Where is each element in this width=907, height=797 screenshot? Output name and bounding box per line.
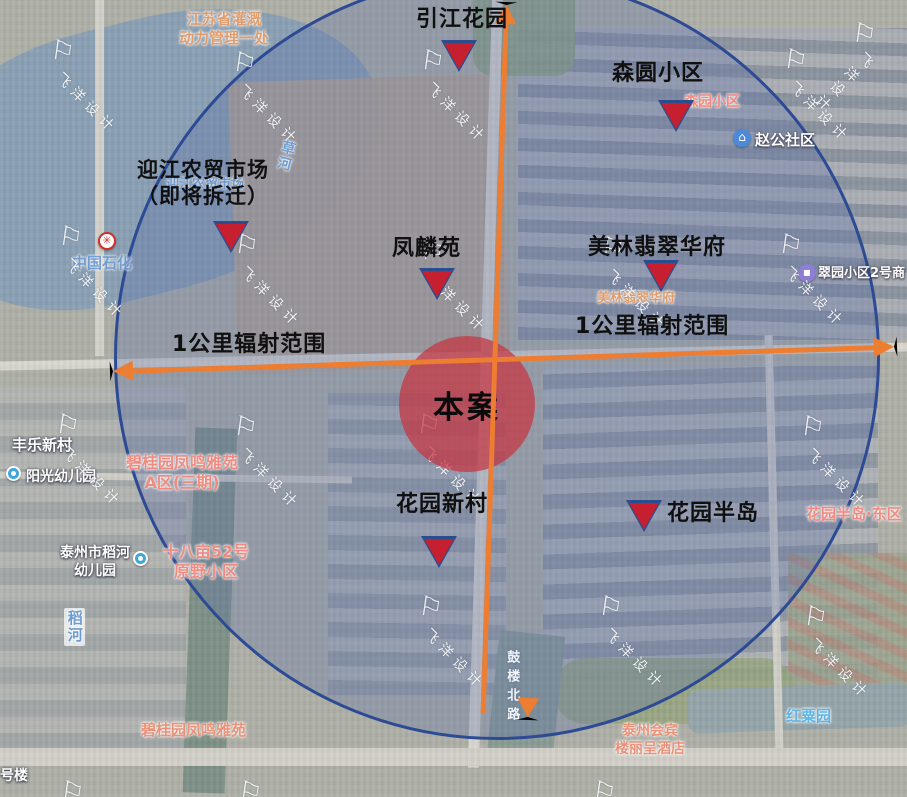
map-label-cuiyuan-shops: 翠园小区2号商 — [818, 266, 905, 282]
shop-icon: ▪ — [798, 264, 816, 282]
map-label-huibin-hotel: 泰州会宾 楼丽呈酒店 — [610, 723, 690, 758]
map-screenshot: 江苏省灌溉 动力管理一处 森园小区 ⌂ 赵公社区 迎江农贸市场 草河 ✳ 中国石… — [0, 0, 907, 797]
map-label-meilin-estate: 美林翡翠华府 — [597, 291, 675, 307]
arrowhead-right — [874, 337, 898, 358]
map-label-building-no-partial: 号楼 — [0, 768, 28, 786]
map-label-bgy-phase3: 碧桂园凤鸣雅苑 A区(三期) — [124, 453, 240, 493]
poi-label-huayuan-peninsula: 花园半岛 — [667, 500, 759, 528]
poi-label-senyuan-estate: 森圆小区 — [612, 60, 704, 88]
map-label-irrigation-office: 江苏省灌溉 动力管理一处 — [163, 10, 285, 48]
poi-marker-yingjiang-market — [213, 221, 249, 253]
poi-marker-huayuan-peninsula — [626, 500, 662, 532]
map-label-shibamu-estate: 十八亩52号 原野小区 — [162, 542, 250, 582]
poi-marker-huayuan-village — [421, 536, 457, 568]
poi-label-fenglin-court: 凤麟苑 — [392, 235, 461, 263]
poi-label-yinjiang-garden: 引江花园 — [416, 6, 508, 34]
map-label-sunshine-kindergarten: 阳光幼儿园 — [26, 469, 96, 487]
poi-label-huayuan-village: 花园新村 — [396, 491, 488, 519]
poi-marker-fenglin-court — [419, 268, 455, 300]
map-label-fengle-village: 丰乐新村 — [12, 436, 72, 455]
poi-label-yingjiang-market: 迎江农贸市场 （即将拆迁） — [135, 157, 271, 210]
community-icon: ⌂ — [733, 129, 751, 147]
map-label-dao-river: 稻河 — [64, 608, 85, 646]
kindergarten-pin-icon — [133, 551, 148, 566]
kindergarten-pin-icon — [6, 466, 21, 481]
poi-marker-yinjiang-garden — [441, 40, 477, 72]
arrowhead-down — [517, 698, 540, 721]
poi-marker-meilin-mansion — [643, 260, 679, 292]
map-label-zhaogong-community: 赵公社区 — [755, 131, 815, 150]
poi-marker-senyuan-estate — [658, 100, 694, 132]
sinopec-icon: ✳ — [98, 232, 116, 250]
arrowhead-left — [110, 361, 134, 382]
map-label-bgy-estate: 碧桂园凤鸣雅苑 — [141, 721, 246, 740]
map-label-daohe-kindergarten: 泰州市稻河 幼儿园 — [55, 545, 135, 580]
map-label-sinopec: 中国石化 — [72, 254, 132, 273]
poi-label-meilin-mansion: 美林翡翠华府 — [588, 234, 726, 262]
radius-label-right: 1公里辐射范围 — [575, 313, 729, 341]
radius-label-left: 1公里辐射范围 — [172, 331, 326, 359]
map-label-huayuan-peninsula-east: 花园半岛·东区 — [806, 505, 902, 524]
map-label-hongsu-garden: 红粟园 — [786, 707, 831, 726]
